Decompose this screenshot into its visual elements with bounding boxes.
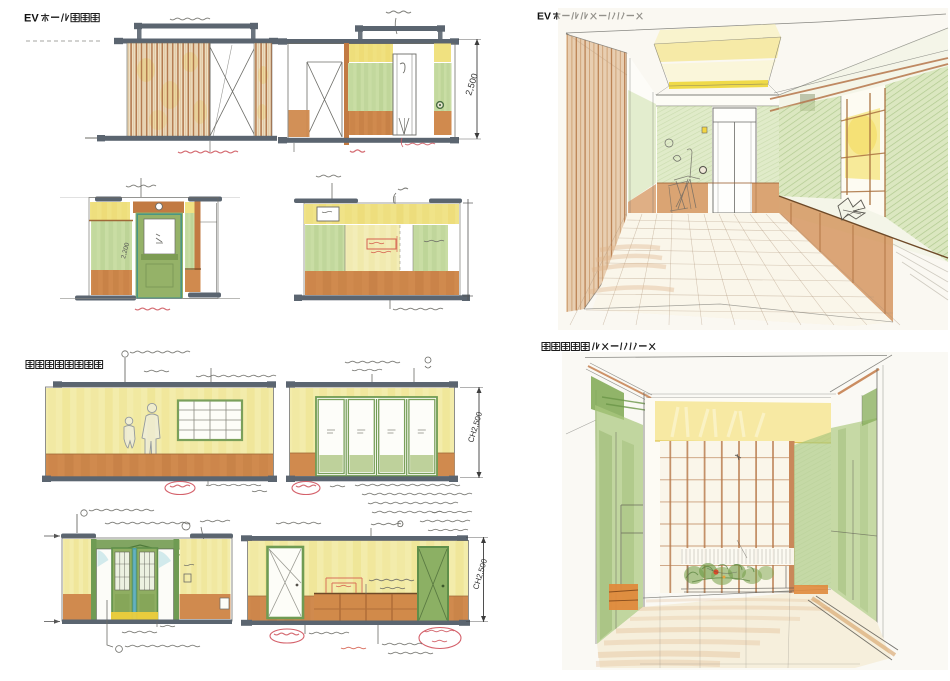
svg-text:EV: EV: [24, 13, 39, 25]
svg-text:EV: EV: [537, 11, 551, 23]
